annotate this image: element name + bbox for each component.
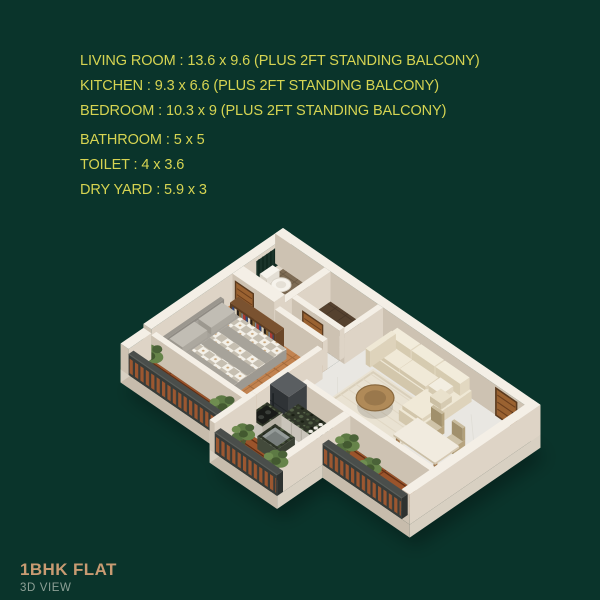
plan-title: 1BHK FLAT: [20, 560, 117, 580]
coffee-table: [356, 385, 394, 419]
plan-subtitle: 3D VIEW: [20, 582, 117, 594]
poster-canvas: LIVING ROOM : 13.6 x 9.6 (PLUS 2FT STAND…: [0, 0, 600, 600]
floor-plan-3d-view: [0, 0, 600, 600]
plan-caption: 1BHK FLAT 3D VIEW: [20, 560, 117, 594]
